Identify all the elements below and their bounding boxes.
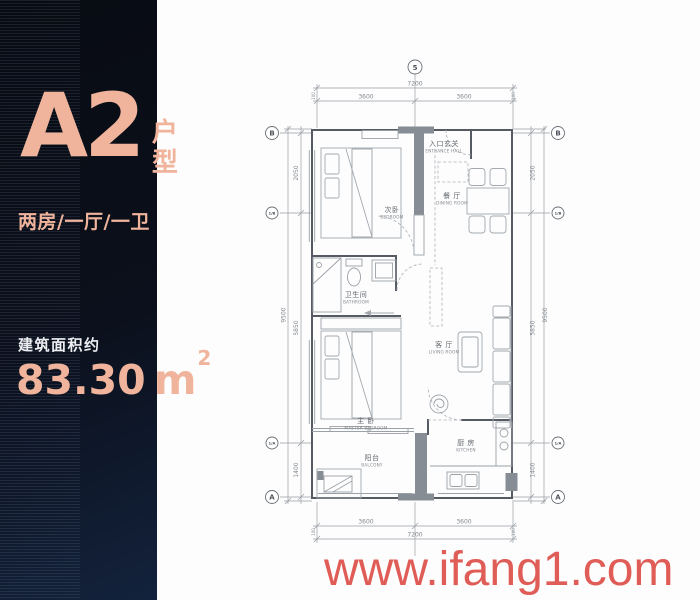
grid-marker-b-right: B: [555, 130, 560, 138]
dim-offset-br: 100: [511, 528, 516, 536]
dim-offset-tl: 100: [311, 92, 316, 100]
dim-bottom-seg-right: 3600: [456, 519, 471, 526]
dim-offset-bl: 100: [311, 528, 316, 536]
dim-top-total: 7200: [407, 81, 422, 88]
room-label-living-en: LIVING ROOM: [429, 350, 460, 355]
door-swing-kitchen: [428, 387, 462, 420]
dining-set: [467, 169, 509, 234]
room-label-bathroom-zh: 卫生间: [345, 290, 368, 299]
wall-fill-top: [398, 127, 434, 134]
room-label-balcony-zh: 阳台: [365, 453, 380, 462]
room-label-bedroom-zh: 次卧: [385, 205, 400, 214]
grid-marker-1a-right: 1/A: [555, 441, 562, 446]
tv-cabinet: [430, 268, 442, 326]
room-label-dining-zh: 餐 厅: [443, 191, 461, 200]
page: A2 户型 两房/一厅/一卫 建筑面积约 83.30m2: [0, 0, 700, 600]
grid-marker-5: 5: [413, 64, 418, 72]
grid-marker-a-left: A: [269, 494, 275, 502]
kitchen-counter: [430, 422, 512, 489]
dim-top-seg-right: 3600: [456, 94, 471, 101]
room-labels: 入口玄关 ENTRANCE HALL 餐 厅 DINING ROOM 次卧 BE…: [343, 139, 476, 468]
room-label-master-zh: 主 卧: [357, 416, 375, 425]
entrance-closet: [362, 131, 398, 139]
door-swing-bathroom: [397, 264, 423, 290]
dim-left-seg-mid: 5850: [293, 320, 300, 335]
grid-marker-1b-left: 1/B: [269, 211, 276, 216]
room-label-kitchen-en: KITCHEN: [456, 448, 476, 453]
dim-bottom-seg-left: 3600: [358, 519, 373, 526]
watermark: www.ifang1.com: [324, 542, 673, 597]
plant: [430, 395, 448, 413]
room-label-balcony-en: BALCONY: [361, 463, 383, 468]
grid-marker-b-left: B: [269, 130, 274, 138]
room-label-bathroom-en: BATHROOM: [343, 300, 369, 305]
dim-offset-tr: 100: [511, 92, 516, 100]
dim-left-seg-top: 2050: [293, 165, 300, 180]
dim-left-total: 9500: [281, 307, 288, 322]
room-label-kitchen-zh: 厨 房: [457, 438, 475, 447]
room-label-living-zh: 客 厅: [435, 340, 453, 349]
floor-plan: 7200 3600 3600 100 100 3600 3600 100 100: [0, 0, 700, 600]
dim-right-seg-mid: 5850: [530, 320, 537, 335]
dim-right-seg-bottom: 1400: [530, 462, 537, 477]
bed-bedroom: [321, 148, 401, 238]
wall-fill-shaft: [506, 473, 518, 491]
dim-left-seg-bottom: 1400: [293, 462, 300, 477]
dim-top-seg-left: 3600: [358, 94, 373, 101]
room-label-entrance-zh: 入口玄关: [429, 139, 459, 148]
room-label-master-en: MASTER BEDROOM: [344, 426, 387, 431]
room-label-entrance-en: ENTRANCE HALL: [425, 149, 463, 154]
furniture: [313, 131, 512, 499]
wall-fill-kitchen: [415, 433, 427, 497]
sofa: [493, 306, 511, 428]
wall-fill-column: [414, 133, 424, 215]
grid-marker-a-right: A: [555, 494, 561, 502]
dim-right-seg-top: 2050: [530, 165, 537, 180]
wall-fill-balcony-post: [317, 471, 324, 480]
grid-marker-1b-right: 1/B: [555, 211, 562, 216]
dim-bottom-total: 7200: [407, 532, 422, 539]
coffee-table: [458, 332, 482, 372]
walls: [312, 127, 518, 501]
dim-right-total: 9500: [542, 307, 549, 322]
entrance-storage: [438, 162, 468, 182]
room-label-dining-en: DINING ROOM: [436, 201, 468, 206]
door-swing-bedroom: [378, 216, 414, 252]
bed-master: [321, 318, 401, 419]
grid-marker-1a-left: 1/A: [269, 441, 276, 446]
wall-fill-bottom: [398, 494, 434, 501]
room-label-bedroom-en: BEDROOM: [380, 215, 403, 220]
